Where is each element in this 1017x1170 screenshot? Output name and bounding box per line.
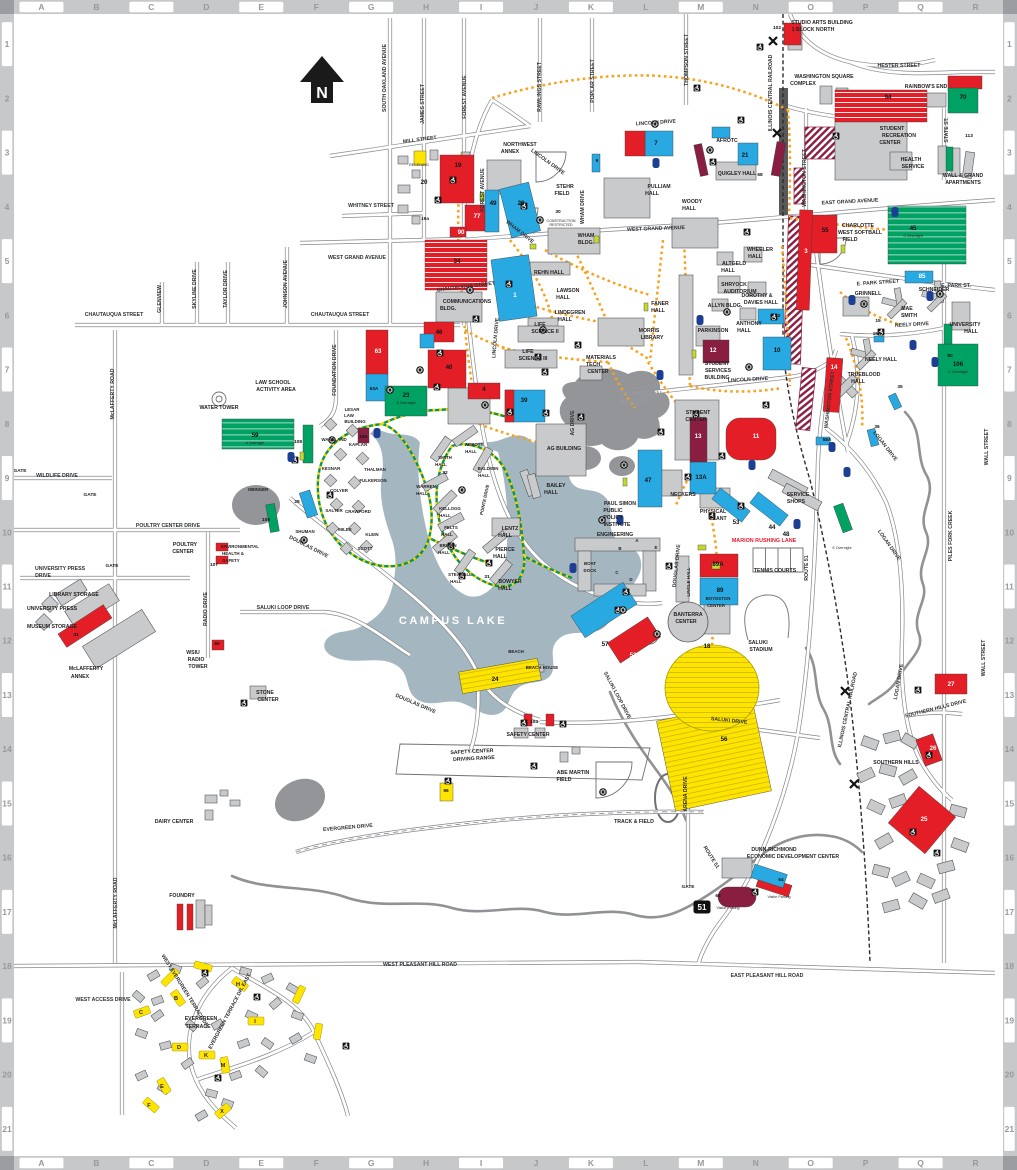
accessible-parking-icon [719, 453, 726, 460]
map-label: 26 [930, 745, 937, 752]
building [672, 218, 718, 248]
map-label: ENGINEERING [597, 532, 633, 538]
grid-number: 6 [5, 310, 10, 320]
building [205, 795, 217, 803]
grid-number: 15 [2, 798, 12, 808]
grid-number: 13 [1005, 690, 1015, 700]
map-label: 14 [831, 364, 838, 371]
map-label: 60 [214, 641, 220, 647]
accessible-parking-icon [473, 316, 480, 323]
emergency-phone-marker [794, 519, 801, 529]
grid-number: 4 [5, 202, 10, 212]
map-label: 68 [757, 172, 763, 178]
building-red [726, 418, 776, 460]
wheel-icon [481, 401, 489, 409]
map-label: TECH [586, 362, 600, 368]
map-label: KAPLAN [349, 442, 367, 447]
map-label: 9 [596, 158, 599, 164]
accessible-parking-icon [666, 563, 673, 570]
map-label: PHYSICAL [700, 509, 727, 515]
grid-letter: O [807, 1158, 814, 1168]
map-label: BOWYER [498, 579, 522, 585]
grid-letter: R [972, 2, 978, 12]
grid-number: 6 [1007, 310, 1012, 320]
grid-number: 14 [1005, 744, 1015, 754]
wheel-icon [860, 300, 868, 308]
map-label: PUBLIC [603, 508, 623, 514]
map-label: BEACH HOUSE [526, 665, 559, 670]
map-label: BALDWIN [478, 466, 499, 471]
map-label: 35 [897, 384, 903, 390]
map-label: NORTHWEST [503, 142, 537, 148]
grid-letter: J [534, 2, 539, 12]
map-label: TAYLOR DRIVE [223, 270, 229, 308]
emergency-phone-marker [570, 563, 577, 573]
map-label: HALL [438, 550, 450, 555]
map-label: FULKERSON [359, 478, 386, 483]
restricted-lot-hatched [805, 127, 839, 159]
map-label: AG BUILDING [547, 446, 581, 452]
parking-lot-green [946, 147, 953, 171]
map-label: 57 [602, 641, 609, 648]
map-label: SOUTHERN HILLS [873, 760, 919, 766]
accessible-entrance-marker [692, 350, 696, 358]
grid-letter: E [258, 2, 264, 12]
map-label: NECKERS [670, 492, 696, 498]
map-label: ABE MARTIN [557, 770, 590, 776]
map-label: 25 [921, 816, 928, 823]
map-label: WEST ACCESS DRIVE [75, 997, 131, 1003]
emergency-phone-marker [653, 158, 660, 168]
accessible-parking-icon [738, 503, 745, 510]
map-label: SCHNEIDER [919, 287, 950, 293]
map-label: SCIENCE II [531, 329, 559, 335]
map-label: WOODS [620, 397, 649, 406]
map-label: HALL [651, 308, 666, 314]
map-label: ALLYN BLDG. [708, 303, 743, 309]
map-label: WAKELAND [321, 437, 346, 442]
emergency-phone-marker [932, 357, 939, 367]
accessible-parking-icon [241, 700, 248, 707]
map-label: SCIENCE III [519, 356, 548, 362]
map-label: 1 [513, 292, 517, 299]
map-label: WALL & GRAND [943, 173, 984, 179]
map-label: CHAUTAUQUA STREET [311, 312, 370, 318]
accessible-parking-icon [934, 850, 941, 857]
map-label: 32 [442, 470, 448, 476]
map-label: BUILDING [344, 419, 366, 424]
grid-letter: G [368, 1158, 375, 1168]
tree-grove [640, 419, 660, 437]
grid-number: 16 [2, 853, 12, 863]
map-label: 70 [960, 94, 967, 101]
map-label: 10 [774, 347, 781, 354]
map-label: UNIVERSITY [949, 322, 981, 328]
accessible-parking-icon [578, 414, 585, 421]
accessible-entrance-marker [841, 245, 845, 253]
map-label: 21 [742, 152, 749, 159]
building-blue [712, 127, 730, 138]
accessible-parking-icon [202, 970, 209, 977]
map-label: JOHNSON AVENUE [283, 259, 289, 308]
grid-letter: R [972, 1158, 978, 1168]
grid-letter: I [480, 2, 482, 12]
emergency-phone-marker [829, 442, 836, 452]
map-label: WEST PLEASANT HILL ROAD [383, 962, 457, 968]
emergency-phone-marker [844, 467, 851, 477]
grid-number: 5 [1007, 256, 1012, 266]
map-label: OBINGER [248, 487, 269, 492]
map-label: 31 [484, 574, 490, 580]
wheel-icon [386, 386, 394, 394]
map-label: ROUTE 51 [804, 555, 810, 580]
grid-letter: B [93, 1158, 99, 1168]
map-label: PARKINSON [698, 328, 729, 334]
map-label: WSIU [186, 650, 200, 656]
map-label: 39 [521, 397, 528, 404]
building-red [546, 714, 554, 726]
map-label: HALL [558, 317, 573, 323]
building [412, 170, 420, 178]
accessible-parking-icon [910, 829, 917, 836]
map-label: DAIRY CENTER [155, 819, 194, 825]
building-red [187, 904, 193, 930]
building [572, 747, 580, 754]
grid-frame-corner [0, 0, 14, 14]
map-label: QUIGLEY HALL [718, 171, 757, 177]
grid-number: 11 [1005, 582, 1014, 592]
accessible-parking-icon [434, 384, 441, 391]
map-label: HALL [498, 586, 513, 592]
map-label: 47 [645, 477, 652, 484]
map-label: TRUEBLOOD [848, 372, 881, 378]
map-label: BEACH [508, 649, 524, 654]
map-label: HALL [478, 473, 490, 478]
building [398, 185, 410, 193]
map-label: MAE [901, 306, 913, 312]
map-label: 58A [823, 437, 832, 443]
accessible-parking-icon [445, 778, 452, 785]
map-label: THOMPSON STREET [684, 33, 690, 86]
map-label: 41 [73, 632, 79, 638]
map-label: TERRACE [185, 1024, 211, 1030]
map-label: TENNIS COURTS [754, 568, 797, 574]
map-label: D [629, 577, 632, 582]
wheel-icon [745, 363, 753, 371]
map-label: GATE [682, 884, 696, 890]
grid-number: 13 [2, 690, 12, 700]
grid-letter: K [588, 2, 595, 12]
map-label: HALL [721, 268, 736, 274]
map-label: 1 BLOCK NORTH [792, 27, 835, 33]
map-label: HALL [498, 533, 513, 539]
map-label: WOODY [682, 199, 703, 205]
building-blue [420, 334, 434, 348]
map-label: SAFETY CENTER [506, 732, 549, 738]
map-label: WATER TOWER [200, 405, 239, 411]
map-label: ARENA DRIVE [683, 776, 689, 812]
grid-letter: N [753, 1158, 759, 1168]
accessible-parking-icon [343, 1043, 350, 1050]
building [679, 275, 693, 375]
grid-frame-corner [0, 1156, 14, 1170]
building [740, 308, 756, 320]
map-label: BROWN [439, 543, 456, 548]
grid-number: 15 [1005, 798, 1015, 808]
map-label: ANTHONY [736, 321, 762, 327]
accessible-parking-icon [744, 229, 751, 236]
building-maroon [690, 418, 707, 462]
map-label: MILES [338, 527, 351, 532]
grid-frame-corner [1003, 0, 1017, 14]
map-label: ABBOTT [465, 442, 484, 447]
map-label: PIERCE [495, 547, 515, 553]
grid-letter: F [314, 2, 319, 12]
map-label: 3 [804, 248, 808, 255]
map-label: B [618, 546, 621, 551]
map-label: 34 [454, 258, 461, 265]
accessible-entrance-marker [300, 452, 304, 460]
accessible-parking-icon [926, 752, 933, 759]
map-label: DOCK [584, 568, 598, 573]
map-label: RADIO [188, 657, 205, 663]
accessible-parking-icon [560, 721, 567, 728]
map-label: COLYER [330, 488, 349, 493]
map-label: CENTER [172, 549, 194, 555]
map-label: F [147, 1103, 151, 1109]
accessible-parking-icon [521, 720, 528, 727]
map-label: LINDEGREN [555, 310, 586, 316]
map-label: SMITH [438, 455, 452, 460]
map-label: B Overnight [397, 401, 416, 405]
map-label: GATE [14, 468, 28, 474]
map-label: TRACK & FIELD [614, 819, 654, 825]
map-label: WHITNEY STREET [348, 203, 395, 209]
building-blue [485, 190, 499, 232]
map-label: CENTER [707, 603, 726, 608]
map-label: E [655, 545, 658, 550]
grid-number: 7 [1007, 365, 1012, 375]
map-label: HALL [450, 579, 462, 584]
map-label: TOWER [188, 664, 207, 670]
building [560, 752, 568, 762]
map-label: STEHR [556, 184, 574, 190]
accessible-parking-icon [215, 1075, 222, 1082]
map-label: WHAM DRIVE [580, 189, 586, 224]
map-label: 19 [455, 162, 462, 169]
building [938, 146, 947, 174]
grid-letter: G [368, 2, 375, 12]
grid-letter: P [863, 1158, 869, 1168]
grid-frame-corner [1003, 1156, 1017, 1170]
map-label: LESAR [345, 407, 361, 412]
map-label: 89A [712, 561, 724, 568]
building [430, 150, 438, 160]
map-label: CENTER [587, 369, 609, 375]
grid-number: 14 [2, 744, 12, 754]
accessible-parking-icon [542, 369, 549, 376]
grid-number: 21 [1005, 1124, 1015, 1134]
grid-number: 8 [1007, 419, 1012, 429]
map-label: HALL [441, 532, 453, 537]
map-label: 40 [446, 364, 453, 371]
map-label: PLANT [709, 516, 727, 522]
map-label: CRAWFORD [345, 509, 371, 514]
map-label: SAFETY [222, 558, 239, 563]
accessible-parking-icon [771, 314, 778, 321]
map-label: WARREN [416, 484, 436, 489]
map-label: 2 [778, 313, 781, 319]
map-label: 55 [822, 227, 829, 234]
map-label: KESNAR [322, 466, 341, 471]
accessible-parking-icon [752, 889, 759, 896]
map-label: JAMES STREET [420, 83, 426, 124]
wheel-icon [599, 788, 607, 796]
map-label: CENTER [675, 619, 697, 625]
grid-number: 12 [2, 636, 12, 646]
map-label: BANTERRA [673, 612, 702, 618]
map-label: 63A [370, 386, 379, 392]
grid-number: 5 [5, 256, 10, 266]
map-label: FOUNDRY [169, 893, 195, 899]
map-label: GATE [84, 492, 98, 498]
grid-number: 3 [1007, 148, 1012, 158]
building [722, 858, 752, 878]
accessible-parking-icon [507, 409, 514, 416]
map-label: SHUMAN [295, 529, 314, 534]
map-label: 65 [715, 893, 721, 899]
map-label: McLAFFERTY ROAD [113, 877, 119, 928]
map-label: DOROTHY & [741, 293, 772, 299]
grid-number: 17 [2, 907, 12, 917]
map-label: MARION RUSHING LANE [732, 538, 797, 544]
grid-number: 1 [5, 39, 10, 49]
parking-lot-red [835, 90, 927, 122]
building [598, 318, 644, 346]
map-label: A Overnight [246, 441, 265, 445]
grid-number: 20 [2, 1070, 12, 1080]
grid-number: 21 [2, 1124, 12, 1134]
accessible-entrance-marker [698, 545, 706, 550]
map-label: COMMUNICATIONS [443, 299, 492, 305]
map-label: RESTRICTED [550, 223, 573, 227]
map-label: 48 [783, 531, 790, 538]
grid-number: 18 [2, 961, 12, 971]
map-label: 49 [490, 200, 497, 207]
map-label: 102 [773, 25, 781, 31]
grid-letter: K [588, 1158, 595, 1168]
map-label: EAST PLEASANT HILL ROAD [731, 973, 804, 979]
emergency-phone-marker [374, 428, 381, 438]
map-label: BAILEY [546, 483, 566, 489]
map-label: CHARLOTTE [842, 223, 875, 229]
emergency-phone-marker [892, 207, 899, 217]
accessible-parking-icon [575, 342, 582, 349]
map-label: McLAFFERTY [69, 666, 104, 672]
map-label: ACTIVITY AREA [256, 387, 296, 393]
grid-letter: M [697, 1158, 704, 1168]
emergency-phone-marker [749, 460, 756, 470]
campus-map: SOUTH OAKLAND AVENUEJAMES STREETFOREST A… [0, 0, 1017, 1170]
accessible-entrance-marker [644, 303, 648, 311]
map-label: McLAFFERTY ROAD [110, 368, 116, 419]
accessible-parking-icon [738, 117, 745, 124]
map-label: POULTRY [173, 542, 198, 548]
map-label: HALL [964, 329, 979, 335]
map-label: RECREATION [882, 133, 916, 139]
building [604, 178, 650, 218]
building [820, 86, 832, 104]
grid-number: 7 [5, 365, 10, 375]
accessible-parking-icon [623, 589, 630, 596]
building-red [177, 904, 183, 930]
accessible-parking-icon [915, 687, 922, 694]
building-red [948, 76, 982, 89]
building [230, 800, 240, 806]
map-label: RAINBOW'S END [905, 84, 948, 90]
map-label: RECEIVING [409, 163, 429, 167]
map-label: SALUKI [748, 640, 768, 646]
emergency-phone-marker [697, 315, 704, 325]
accessible-parking-icon [833, 133, 840, 140]
accessible-parking-icon [435, 197, 442, 204]
map-label: M [221, 1063, 226, 1069]
map-label: GATE [106, 563, 120, 569]
map-label: HALL [556, 295, 571, 301]
map-label: 113 [965, 133, 973, 139]
grid-number: 19 [2, 1015, 12, 1025]
building-maroon [718, 887, 756, 907]
map-label: 20 [421, 179, 428, 186]
grid-letter: D [203, 1158, 209, 1168]
map-label: B [174, 996, 178, 1002]
north-label: N [316, 85, 328, 102]
map-label: LIBRARY [641, 335, 664, 341]
accessible-entrance-marker [594, 236, 599, 243]
map-label: ALTGELD [722, 261, 746, 267]
map-label: WHAM [578, 233, 595, 239]
map-label: E [160, 1084, 164, 1090]
map-label: INSTITUTE [604, 522, 631, 528]
accessible-parking-icon [254, 994, 261, 1001]
map-label: 23 [403, 392, 410, 399]
map-label: UNIVERSITY PRESS [27, 606, 78, 612]
parking-lot-green [888, 206, 966, 264]
map-label: ECONOMIC DEVELOPMENT CENTER [747, 854, 839, 860]
map-label: FIELD [843, 237, 858, 243]
map-label: FOREST AVENUE [462, 75, 468, 119]
map-label: STADIUM [749, 647, 772, 653]
emergency-phone-marker [288, 452, 295, 462]
map-label: 108 [294, 439, 302, 445]
map-label: REHN HALL [534, 270, 565, 276]
grid-letter: D [203, 2, 209, 12]
map-label: X [220, 1109, 224, 1115]
map-label: 80 [947, 353, 953, 359]
map-label: C Overnight [903, 234, 922, 238]
building [398, 205, 408, 213]
building [398, 156, 408, 164]
map-label: HALL [439, 513, 451, 518]
grid-number: 8 [5, 419, 10, 429]
map-label: HALL [645, 191, 660, 197]
accessible-parking-icon [757, 44, 764, 51]
building [205, 905, 212, 925]
parking-lot-green [303, 425, 313, 463]
map-label: HALL [748, 254, 763, 260]
map-label: STUDIO ARTS BUILDING [791, 20, 852, 26]
campus-map-page: SOUTH OAKLAND AVENUEJAMES STREETFOREST A… [0, 0, 1017, 1170]
